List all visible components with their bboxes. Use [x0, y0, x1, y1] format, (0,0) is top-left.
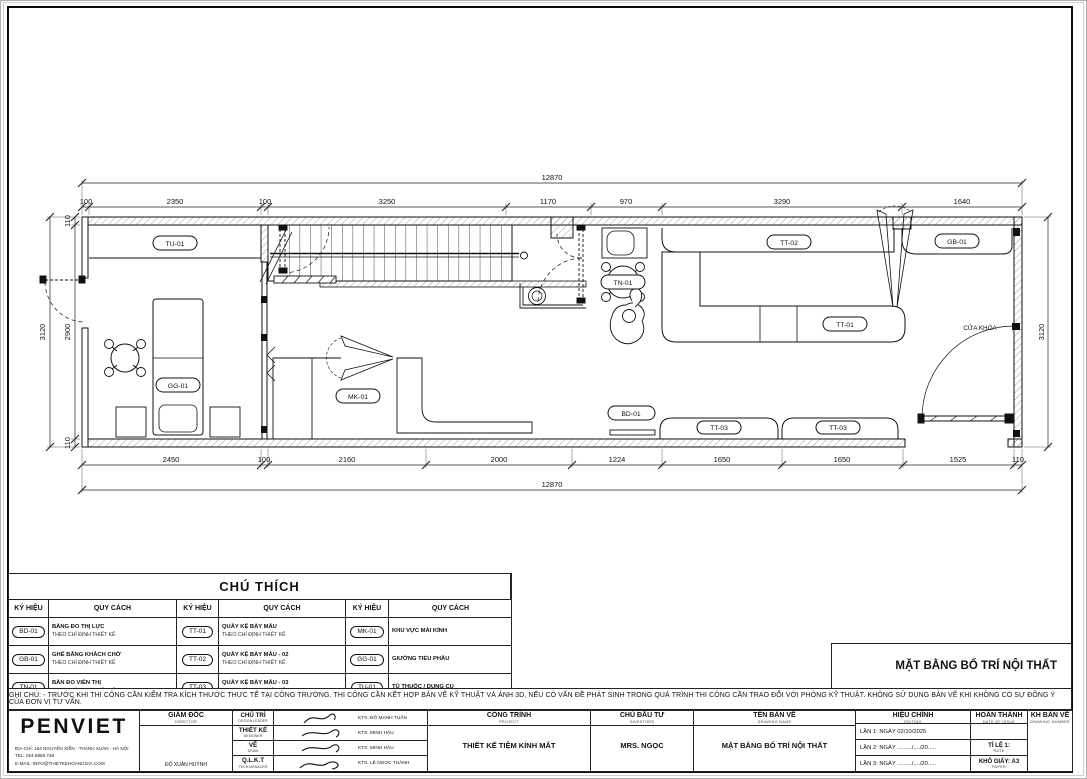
signature-squiggle [274, 757, 354, 771]
dim-overall-bottom: 12870 [542, 480, 563, 489]
signature-squiggle [274, 741, 354, 755]
wall-left-lower [82, 328, 88, 447]
director-cell: GIÁM ĐỐC DIRECTOR ĐỖ XUÂN HUỲNH [139, 710, 233, 772]
dim-top: 100 [259, 197, 272, 206]
legend-table: CHÚ THÍCH KÝ HIỆU QUY CÁCH KÝ HIỆU QUY C… [8, 573, 512, 688]
editing-row-1: LẦN 1: NGÀY 02/10/2025 [855, 723, 971, 740]
legend-header-spec: QUY CÁCH [48, 600, 176, 618]
label-tt02: TT-02 [767, 235, 811, 249]
legend-spec: GIƯỜNG TIỂU PHẪU [388, 646, 512, 674]
signer-name: KTS. LÊ NGỌC THÀNH [358, 761, 409, 766]
label-mk01: MK-01 [336, 389, 380, 403]
dim-top: 2350 [167, 197, 184, 206]
column-1 [551, 217, 573, 238]
signature-row: KTS. ĐỖ MẠNH TUẤN [273, 710, 428, 726]
legend-code: GB-01 [8, 646, 48, 674]
svg-text:TT-02: TT-02 [780, 240, 798, 247]
project-cell: CÔNG TRÌNHPROJECT THIẾT KẾ TIỆM KÍNH MẮT [427, 710, 591, 772]
dim-top: 1170 [540, 197, 556, 206]
svg-text:TN-01: TN-01 [614, 280, 633, 287]
drawing-number-cell: KH BẢN VẼDRAWING NUMBER [1027, 710, 1073, 772]
eye-chart-board-bd01 [610, 430, 655, 435]
stair-edge-wall [320, 281, 586, 287]
company-cell: PENVIET ĐỊA CHỈ: 164 NGUYỄN XIỂN - THANH… [8, 710, 140, 772]
dim-bottom: 2450 [163, 455, 180, 464]
dim-top: 3250 [379, 197, 396, 206]
svg-text:TT-01: TT-01 [836, 322, 854, 329]
entrance-door-leaf [922, 416, 1008, 421]
project-value: THIẾT KẾ TIỆM KÍNH MẮT [428, 726, 590, 766]
mk-area [273, 336, 532, 439]
svg-text:GB-01: GB-01 [947, 239, 967, 246]
drawing-name-value: MẶT BẰNG BỐ TRÍ NỘI THẤT [694, 726, 855, 766]
label-tt03-a: TT-03 [697, 421, 741, 434]
svg-text:TT-03: TT-03 [710, 425, 728, 432]
toilet [529, 288, 546, 305]
partition-door-arrows [267, 347, 275, 381]
dim-top: 1640 [954, 197, 971, 206]
director-name: ĐỖ XUÂN HUỲNH [140, 762, 232, 768]
mk-counter [397, 358, 532, 433]
dim-left: 2900 [63, 324, 72, 341]
scale-cell: TỈ LỆ 1: RATE [970, 739, 1028, 756]
company-address: ĐỊA CHỈ: 164 NGUYỄN XIỂN - THANH XUÂN - … [15, 745, 139, 767]
drawing-title-box: MẶT BẰNG BỐ TRÍ NỘI THẤT [831, 643, 1072, 689]
svg-text:TU-01: TU-01 [166, 241, 185, 248]
sink-basin [607, 231, 634, 255]
role-qlkt: Q.L.K.TTECH.MANAGER [232, 755, 274, 772]
staircase [260, 225, 586, 287]
investor-cell: CHỦ ĐẦU TƯINVESTORS MRS. NGỌC [590, 710, 694, 772]
note-text: GHI CHÚ: - TRƯỚC KHI THI CÔNG CẦN KIỂM T… [9, 692, 1071, 706]
investor-value: MRS. NGỌC [591, 726, 693, 766]
legend-spec: QUẦY KỆ BÀY MẪUTHEO CHỈ ĐỊNH THIẾT KẾ [218, 618, 345, 646]
dim-top: 100 [80, 197, 93, 206]
legend-code: MK-01 [345, 618, 388, 646]
wall-left-upper [82, 217, 88, 278]
paper-cell: KHỔ GIẤY: A3 PAPER [970, 755, 1028, 772]
person-figure [610, 303, 644, 344]
legend-header-symbol: KÝ HIỆU [176, 600, 218, 618]
dim-bottom: 2000 [491, 455, 508, 464]
legend-header-symbol: KÝ HIỆU [8, 600, 48, 618]
label-tt01: TT-01 [823, 317, 867, 331]
legend-code: BD-01 [8, 618, 48, 646]
editing-row-2: LẦN 2: NGÀY ........./..../20..... [855, 739, 971, 756]
legend-spec: QUẦY KỆ BÀY MẪU - 02THEO CHỈ ĐỊNH THIẾT … [218, 646, 345, 674]
svg-text:TT-03: TT-03 [829, 425, 847, 432]
wall-bottom [82, 439, 905, 447]
editing-row-3: LẦN 3: NGÀY ........./..../20..... [855, 755, 971, 772]
signature-row: KTS. LÊ NGỌC THÀNH [273, 755, 428, 772]
signer-name: KTS. MINH HẬU [358, 746, 394, 751]
drawing-name-cell: TÊN BẢN VẼDRAWING NAME MẶT BẰNG BỐ TRÍ N… [693, 710, 856, 772]
entrance-door-swing [922, 326, 1014, 418]
wc-door-swing [538, 258, 581, 303]
hall-door-leaf [579, 228, 583, 258]
dim-bottom: 1650 [834, 455, 851, 464]
legend-title: CHÚ THÍCH [8, 573, 511, 600]
signature-row: KTS. MINH HẬU [273, 740, 428, 756]
dim-left: 110 [63, 437, 72, 449]
wc-door-leaf [579, 258, 583, 303]
legend-code: TT-01 [176, 618, 218, 646]
label-cua-khoa: CỬA KHÓA [963, 323, 997, 332]
role-thietke: THIẾT KẾDESIGNER [232, 725, 274, 741]
round-table [111, 344, 139, 372]
sink-cabinet [602, 228, 647, 258]
issue-empty [970, 723, 1028, 740]
label-gb01: GB-01 [935, 234, 979, 248]
dim-bottom: 110 [1012, 455, 1024, 464]
dim-bottom: 100 [258, 455, 271, 464]
drawing-sheet: { "plan": { "dims": { "overall": "12870"… [0, 0, 1087, 779]
signature-squiggle [274, 726, 354, 740]
dim-left: 110 [63, 215, 72, 227]
svg-text:MK-01: MK-01 [348, 394, 368, 401]
svg-text:GG-01: GG-01 [168, 383, 189, 390]
room-left [89, 258, 275, 437]
label-bd01: BD-01 [608, 406, 655, 420]
issue-header: HOÀN THÀNHDATE OF ISSUE [970, 710, 1028, 724]
column-2 [893, 217, 911, 229]
drawing-title: MẶT BẰNG BỐ TRÍ NỘI THẤT [895, 660, 1057, 672]
dim-bottom: 1224 [609, 455, 626, 464]
company-logo: PENVIET [9, 715, 139, 739]
role-ve: VẼDRAW [232, 740, 274, 756]
legend-spec: KHU VỰC MÀI KÍNH [388, 618, 512, 646]
legend-header-spec: QUY CÁCH [388, 600, 512, 618]
legend-code: GG-01 [345, 646, 388, 674]
svg-text:BD-01: BD-01 [621, 411, 640, 418]
legend-header-symbol: KÝ HIỆU [345, 600, 388, 618]
dim-bottom: 2160 [339, 455, 356, 464]
legend-code: TT-02 [176, 646, 218, 674]
stool [210, 407, 240, 437]
signer-name: KTS. MINH HẬU [358, 731, 394, 736]
legend-spec: BẢNG ĐO THỊ LỰCTHEO CHỈ ĐỊNH THIẾT KẾ [48, 618, 176, 646]
label-tt03-b: TT-03 [816, 421, 860, 434]
dim-left-overall: 3120 [38, 324, 47, 341]
partition-glass [262, 262, 267, 439]
dim-top: 3290 [774, 197, 791, 206]
entrance-door [918, 326, 1014, 423]
partition-top [261, 225, 268, 262]
legend-spec: GHẾ BĂNG KHÁCH CHỜTHEO CHỈ ĐỊNH THIẾT KẾ [48, 646, 176, 674]
signature-row: KTS. MINH HẬU [273, 725, 428, 741]
note-bar: GHI CHÚ: - TRƯỚC KHI THI CÔNG CẦN KIỂM T… [8, 688, 1072, 710]
dim-top: 970 [620, 197, 633, 206]
low-cabinet [273, 358, 312, 439]
label-tu01: TU-01 [153, 236, 197, 250]
signer-name: KTS. ĐỖ MẠNH TUẤN [358, 716, 407, 721]
signature-squiggle [274, 711, 354, 725]
dim-bottom: 1525 [950, 455, 967, 464]
legend-header-spec: QUY CÁCH [218, 600, 345, 618]
stool [116, 407, 146, 437]
dim-overall-top: 12870 [542, 173, 563, 182]
role-chutri: CHỦ TRÌDESIGN LEADER [232, 710, 274, 726]
label-tn01: TN-01 [601, 275, 645, 289]
counter-tt01 [662, 252, 905, 342]
director-label: GIÁM ĐỐC [140, 711, 232, 720]
wall-right [1014, 217, 1022, 447]
editing-header: HIỆU CHỈNHEDITING [855, 710, 971, 724]
double-door-symbol [341, 336, 393, 380]
label-gg01: GG-01 [156, 378, 200, 392]
handrail-post [521, 252, 528, 259]
surgery-bed-gg01 [153, 299, 203, 435]
left-wall-door [40, 276, 85, 322]
dim-right-overall: 3120 [1037, 324, 1046, 341]
dim-bottom: 1650 [714, 455, 731, 464]
